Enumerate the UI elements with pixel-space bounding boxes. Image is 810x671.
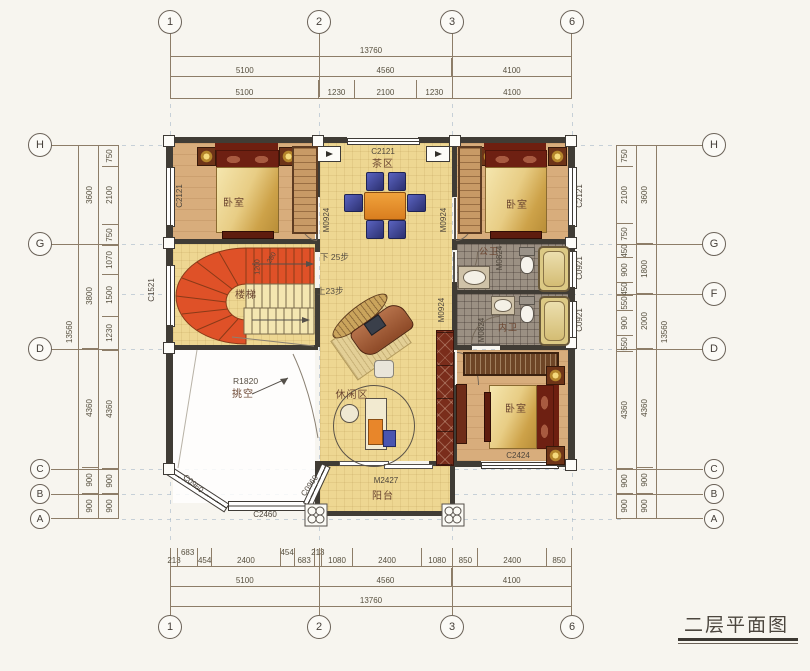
door-leaf (453, 252, 455, 282)
axis-bubble-C-left: C (30, 459, 50, 479)
axis-label: 2 (316, 16, 322, 28)
bed-headboard (484, 143, 546, 150)
window-label-c2121-left: C2121 (176, 184, 184, 208)
dim-right-total: 13560 (656, 145, 673, 519)
axis-bubble-A-left: A (30, 509, 50, 529)
dimension-segment: 213 (314, 548, 321, 566)
dimension-segment: 900 (102, 493, 118, 519)
dimension-segment: 13760 (170, 38, 572, 56)
dimension-value: 900 (86, 474, 94, 487)
bathtub-inner (544, 301, 565, 341)
dimension-segment: 4360 (82, 348, 98, 467)
dimension-value: 4560 (377, 577, 395, 585)
dimension-segment: 13760 (170, 588, 572, 606)
bed (489, 385, 537, 449)
dimension-value: 3600 (86, 186, 94, 204)
dimension-segment: 900 (637, 493, 653, 519)
dimension-segment: 900 (637, 467, 653, 492)
grid-line-A (122, 519, 622, 520)
sink-bowl (494, 299, 511, 311)
axis-label: 2 (316, 621, 322, 633)
dimension-segment: 13560 (657, 145, 673, 519)
dimension-segment: 2400 (211, 548, 280, 566)
dimension-segment: 1080 (421, 548, 452, 566)
nightstand (546, 366, 565, 385)
room-label-tea-area: 茶区 (372, 160, 394, 170)
toilet-tank (519, 296, 535, 305)
dimension-value: 4100 (503, 89, 521, 97)
dimension-segment: 3600 (637, 145, 653, 243)
axis-bubble-2-top: 2 (307, 10, 331, 34)
axis-bubble-3-top: 3 (440, 10, 464, 34)
dimension-value: 683 (297, 557, 310, 565)
wall-post (163, 237, 175, 249)
dimension-segment: 213 (170, 548, 177, 566)
sink (458, 266, 490, 289)
dimension-segment: 1080 (321, 548, 352, 566)
dimension-segment: 1230 (416, 80, 452, 98)
door-leaf (454, 198, 456, 240)
dimension-segment: 850 (546, 548, 572, 566)
dimension-value: 2000 (641, 312, 649, 330)
dimension-value: 900 (86, 499, 94, 512)
room-label-balcony: 阳台 (372, 492, 394, 502)
dimension-value: 1070 (106, 251, 114, 269)
room-label-bedroom-tl: 卧室 (223, 199, 245, 209)
note-up-steps: 上23步 (317, 287, 343, 296)
axis-bubble-G-left: G (28, 232, 52, 256)
wall (452, 345, 472, 350)
chair (366, 172, 384, 191)
axis-bubble-1-bottom: 1 (158, 615, 182, 639)
door-label-m0824-upper: M0824 (496, 246, 504, 270)
dimension-value: 1080 (328, 557, 346, 565)
window-c2121-left (166, 167, 175, 227)
dimension-segment: 900 (102, 468, 118, 493)
dimension-segment: 5100 (170, 568, 319, 586)
bed-headboard (215, 143, 278, 150)
dimension-segment: 4100 (451, 568, 572, 586)
wall (568, 339, 575, 467)
chair (388, 172, 406, 191)
toilet (519, 296, 535, 322)
window-c2121-top (347, 138, 420, 145)
bathtub-inner (543, 251, 565, 287)
room-label-bath-private: 内卫 (498, 324, 518, 333)
axis-label: H (36, 139, 44, 151)
dimension-segment: 2000 (637, 293, 653, 348)
axis-bubble-D-left: D (28, 337, 52, 361)
dimension-value: 1500 (106, 287, 114, 305)
dimension-value: 900 (621, 317, 629, 330)
dimension-value: 1230 (106, 324, 114, 342)
wall (452, 239, 575, 244)
dimension-value: 4360 (641, 399, 649, 417)
axis-bubble-C-right: C (704, 459, 724, 479)
axis-label: F (711, 288, 718, 300)
door-label-m0924-hall: M0924 (438, 298, 446, 322)
dimension-value: 4360 (86, 399, 94, 417)
dim-bottom-spans: 510045604100 (170, 568, 572, 587)
dimension-value: 4360 (106, 400, 114, 418)
axis-bubble-B-left: B (30, 484, 50, 504)
dimension-value: 750 (621, 227, 629, 240)
wall-post (565, 459, 577, 471)
dimension-value: 5100 (236, 67, 254, 75)
dimension-value: 900 (106, 474, 114, 487)
dimension-segment: 2400 (477, 548, 546, 566)
axis-label: C (36, 464, 43, 475)
dimension-segment: 4560 (319, 568, 452, 586)
dimension-segment: 683 (177, 548, 197, 566)
dimension-value: 5100 (236, 577, 254, 585)
dimension-value: 2400 (503, 557, 521, 565)
dimension-value: 13560 (661, 321, 669, 343)
dimension-value: 750 (106, 149, 114, 162)
dimension-value: 4360 (621, 401, 629, 419)
door-label-m0924-tl: M0924 (323, 208, 331, 232)
toilet (519, 247, 535, 273)
bookshelf (436, 330, 454, 466)
axis-label: G (710, 238, 719, 250)
note-down-steps: 下 25步 (320, 253, 349, 262)
wall-post (163, 135, 175, 147)
balcony-column (441, 503, 465, 527)
axis-label: A (37, 514, 44, 525)
dim-left-spans: 360038004360900900 (82, 145, 99, 519)
room-label-bedroom-tr: 卧室 (506, 201, 528, 211)
wall-post (565, 135, 577, 147)
door-leaf (471, 344, 500, 346)
toilet-bowl (520, 256, 534, 274)
wardrobe (292, 146, 318, 234)
axis-label: D (710, 343, 718, 355)
floor-plan-sheet: 13760 510045604100 51001230210012304100 … (0, 0, 810, 671)
window-label-c0921-lower: C0921 (576, 308, 584, 332)
dim-left-detail: 75021007501070150012304360900900 (102, 145, 119, 519)
dimension-value: 2100 (106, 186, 114, 204)
dimension-value: 1230 (328, 89, 346, 97)
toilet-tank (519, 247, 535, 256)
axis-bubble-1-top: 1 (158, 10, 182, 34)
dimension-value: 2100 (621, 186, 629, 204)
door-label-m0924-tr: M0924 (440, 208, 448, 232)
vent-symbol (426, 146, 450, 162)
axis-label: 6 (569, 621, 575, 633)
dimension-segment: 2100 (354, 80, 415, 98)
axis-bubble-6-bottom: 6 (560, 615, 584, 639)
axis-bubble-H-left: H (28, 133, 52, 157)
axis-label: 3 (449, 16, 455, 28)
bed-footboard (484, 392, 491, 442)
table-item-blue (383, 430, 396, 447)
axis-label: A (711, 514, 718, 525)
dimension-segment: 2400 (352, 548, 421, 566)
chair (407, 194, 426, 212)
axis-bubble-G-right: G (702, 232, 726, 256)
bed-footboard (490, 231, 542, 239)
dimension-segment: 4100 (451, 58, 572, 76)
dimension-segment: 900 (82, 467, 98, 492)
room-label-lounge: 休闲区 (336, 391, 369, 401)
sink-bowl (463, 270, 486, 285)
dimension-value: 750 (106, 228, 114, 241)
stair-dim-1200: 1200 (255, 259, 262, 275)
dimension-segment: 1500 (102, 274, 118, 315)
dimension-value: 13760 (360, 47, 382, 55)
dimension-value: 550 (621, 296, 629, 309)
dim-right-detail: 75021007504509004505509005504360900900 (616, 145, 633, 519)
bathtub (538, 246, 570, 292)
desk-chair (374, 360, 394, 378)
dimension-value: 750 (621, 149, 629, 162)
dimension-value: 683 (181, 549, 194, 557)
dimension-segment: 1230 (318, 80, 354, 98)
window-label-c1521: C1521 (148, 278, 156, 302)
dimension-value: 900 (621, 499, 629, 512)
bed-footboard (222, 231, 274, 239)
dimension-segment: 750 (102, 145, 118, 166)
balcony-column (304, 503, 328, 527)
dimension-segment: 850 (452, 548, 477, 566)
dimension-segment: 900 (617, 257, 633, 282)
dimension-value: 1230 (425, 89, 443, 97)
vent-symbol (317, 146, 341, 162)
dim-top-total: 13760 (170, 38, 572, 57)
dimension-segment: 13560 (62, 145, 78, 519)
dimension-value: 5100 (235, 89, 253, 97)
dimension-segment: 2100 (102, 166, 118, 223)
dimension-segment: 450 (617, 282, 633, 295)
dimension-segment: 750 (617, 223, 633, 244)
door-m2427-panel (384, 464, 433, 469)
dimension-segment: 900 (617, 310, 633, 335)
dimension-value: 2400 (237, 557, 255, 565)
axis-label: 1 (167, 621, 173, 633)
nightstand (197, 147, 216, 166)
tea-table (364, 192, 406, 220)
dimension-value: 850 (459, 557, 472, 565)
toilet-bowl (520, 305, 534, 323)
axis-label: D (36, 343, 44, 355)
window-label-c0921-upper: C0921 (576, 256, 584, 280)
dimension-value: 900 (621, 474, 629, 487)
chair (366, 220, 384, 239)
dimension-segment: 454 (197, 548, 211, 566)
dim-bottom-total: 13760 (170, 588, 572, 607)
dimension-segment: 1070 (102, 245, 118, 275)
tv-console (456, 384, 467, 444)
axis-label: 3 (449, 621, 455, 633)
dim-bottom-detail: 2136834542400454683213108024001080850240… (170, 548, 572, 567)
dimension-value: 4560 (377, 67, 395, 75)
table-item-orange (368, 419, 383, 445)
drawing-title: 二层平面图 (684, 610, 789, 637)
sink (491, 296, 515, 315)
vent-arrow-icon (326, 151, 333, 157)
dimension-segment: 450 (617, 244, 633, 257)
window-label-c2424: C2424 (506, 452, 530, 460)
dimension-segment: 5100 (170, 58, 319, 76)
dimension-segment: 900 (617, 493, 633, 519)
axis-bubble-D-right: D (702, 337, 726, 361)
axis-bubble-B-right: B (704, 484, 724, 504)
dimension-segment: 3600 (82, 145, 98, 244)
dimension-value: 2100 (376, 89, 394, 97)
nightstand (546, 446, 565, 465)
dimension-segment: 1800 (637, 243, 653, 293)
axis-bubble-A-right: A (704, 509, 724, 529)
dimension-value: 450 (621, 244, 629, 257)
dimension-value: 900 (641, 499, 649, 512)
dimension-segment: 454 (280, 548, 294, 566)
axis-bubble-2-bottom: 2 (307, 615, 331, 639)
dimension-value: 4100 (503, 577, 521, 585)
window-label-c2121-top: C2121 (371, 148, 395, 156)
dimension-segment: 1230 (102, 316, 118, 350)
floor-balcony (320, 466, 450, 511)
wall-post (163, 342, 175, 354)
bed-pillows (535, 385, 554, 449)
dimension-value: 550 (621, 337, 629, 350)
dimension-value: 900 (621, 263, 629, 276)
dimension-segment: 4100 (452, 80, 572, 98)
nightstand (548, 147, 567, 166)
dimension-value: 4100 (503, 67, 521, 75)
dimension-segment: 4360 (102, 350, 118, 468)
room-label-stairs: 楼梯 (235, 291, 257, 301)
dimension-value: 3800 (86, 287, 94, 305)
dimension-segment: 3800 (82, 244, 98, 348)
dim-right-spans: 3600180020004360900900 (636, 145, 653, 519)
window-label-c2121-right: C2121 (576, 184, 584, 208)
dimension-value: 3600 (641, 186, 649, 204)
dimension-value: 454 (280, 549, 293, 557)
wall-post (163, 463, 175, 475)
room-label-void: 挑空 (232, 390, 254, 400)
dimension-segment: 4360 (637, 348, 653, 467)
dimension-segment: 750 (102, 224, 118, 245)
vent-arrow-icon (435, 151, 442, 157)
wardrobe (463, 352, 559, 376)
dimension-segment: 550 (617, 335, 633, 351)
axis-label: B (37, 489, 44, 500)
axis-bubble-H-right: H (702, 133, 726, 157)
note-void-radius: R1820 (233, 377, 258, 386)
dim-left-total: 13560 (62, 145, 79, 519)
chair (344, 194, 363, 212)
axis-bubble-3-bottom: 3 (440, 615, 464, 639)
wall (455, 461, 481, 467)
axis-label: B (711, 489, 718, 500)
dimension-segment: 4360 (617, 351, 633, 468)
window-label-c2460: C2460 (253, 511, 277, 519)
axis-label: G (36, 238, 45, 250)
bathtub (539, 296, 570, 346)
axis-bubble-6-top: 6 (560, 10, 584, 34)
wardrobe (458, 146, 482, 234)
title-underline-thin (678, 643, 798, 644)
chair (388, 220, 406, 239)
dimension-value: 13760 (360, 597, 382, 605)
axis-bubble-F-right: F (702, 282, 726, 306)
axis-label: H (710, 139, 718, 151)
dimension-segment: 4560 (319, 58, 452, 76)
dimension-segment: 550 (617, 295, 633, 311)
axis-label: C (710, 464, 717, 475)
stool (340, 404, 359, 423)
dimension-value: 900 (641, 474, 649, 487)
dimension-value: 1800 (641, 260, 649, 278)
dimension-segment: 900 (82, 493, 98, 519)
dimension-value: 13560 (66, 321, 74, 343)
dimension-segment: 750 (617, 145, 633, 166)
balcony-railing (315, 511, 455, 516)
room-label-bedroom-br: 卧室 (505, 405, 527, 415)
axis-label: 6 (569, 16, 575, 28)
dimension-value: 450 (621, 282, 629, 295)
dim-top-detail: 51001230210012304100 (170, 80, 572, 99)
dimension-segment: 2100 (617, 166, 633, 223)
axis-label: 1 (167, 16, 173, 28)
dimension-value: 850 (552, 557, 565, 565)
dimension-segment: 900 (617, 468, 633, 493)
door-label-m0824-lower: M0824 (478, 318, 486, 342)
dimension-value: 2400 (378, 557, 396, 565)
dimension-segment: 5100 (170, 80, 318, 98)
dimension-value: 1080 (428, 557, 446, 565)
title-underline (678, 638, 798, 641)
dim-top-spans: 510045604100 (170, 58, 572, 77)
dimension-value: 454 (198, 557, 211, 565)
door-label-m2427: M2427 (374, 477, 398, 485)
dimension-value: 900 (106, 499, 114, 512)
